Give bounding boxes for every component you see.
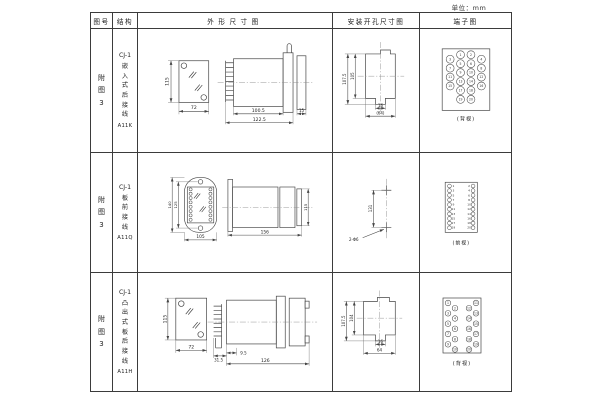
col-header-fig-no: 图号 [91,13,113,29]
mounting-cell-2: 131 2-Φ6 [333,153,420,273]
svg-text:16: 16 [479,84,483,88]
dim-body-depth: 126 [261,358,270,364]
terminal-drawing-a11q: 135791113151719 2468101214161820 (前视) [420,153,511,272]
svg-text:17: 17 [452,221,456,225]
structure-cell-2: CJ-1 板前接线 A11Q [113,153,138,273]
dim-front-inner-height: 125 [174,201,178,209]
svg-text:9: 9 [447,342,449,346]
mounting-drawing-a11q: 131 2-Φ6 [333,153,419,272]
fig-no-label: 附图3 [97,194,105,232]
svg-text:4: 4 [480,57,482,61]
svg-text:8: 8 [454,337,456,341]
code-label: A11K [118,123,133,129]
mounting-cell-3: 107.5 104 16 64 [333,273,420,391]
svg-text:4: 4 [454,317,456,321]
structure-label: 嵌入式后接线 [121,62,128,120]
svg-text:2: 2 [454,306,456,310]
svg-text:13: 13 [452,212,456,216]
terminal-column-right: 2468101214161820 [467,184,475,230]
terminal-grid-rear: 1234567891011121314151617181920 [445,300,479,352]
fig-no-cell-1: 附图3 [91,29,113,153]
fig-no-cell-2: 附图3 [91,153,113,273]
svg-text:20: 20 [467,348,471,352]
svg-text:19: 19 [459,98,463,102]
svg-text:12: 12 [467,306,471,310]
model-label: CJ-1 [119,289,131,296]
dim-panel: 15 [299,108,305,113]
front-terminal-dots [189,188,212,221]
svg-text:17: 17 [474,332,478,336]
dim-offset: 9.5 [240,350,247,355]
dim-cutout-width: 64 [377,348,383,353]
svg-text:1: 1 [447,301,449,305]
svg-text:14: 14 [467,317,471,321]
svg-text:7: 7 [447,332,449,336]
col-header-terminal: 端子图 [420,13,511,29]
svg-text:7: 7 [449,66,451,70]
svg-text:15: 15 [474,322,478,326]
svg-text:12: 12 [479,75,483,79]
mounting-cell-1: 107.5 105 16 (64) [333,29,420,153]
svg-text:10: 10 [469,71,473,75]
svg-text:6: 6 [468,193,470,197]
dim-slot-width: 16 [378,103,384,108]
terminal-grid-rear: 1234567891011121314151617181920 [446,51,485,104]
terminal-drawing-a11k: 1234567891011121314151617181920 (背视) [420,29,511,152]
svg-text:5: 5 [460,62,462,66]
view-label: (背视) [457,114,475,122]
svg-text:16: 16 [467,327,471,331]
col-header-structure: 结构 [113,13,138,29]
svg-text:16: 16 [467,216,471,220]
svg-text:13: 13 [459,80,463,84]
code-label: A11H [117,369,132,375]
terminal-drawing-a11h: 1234567891011121314151617181920 (背视) [420,273,511,391]
code-label: A11Q [117,235,132,241]
dim-front-height: 115 [165,77,171,86]
outline-drawing-a11q: 140 125 105 156 115 [138,153,332,272]
terminal-cell-2: 135791113151719 2468101214161820 (前视) [420,153,511,273]
outline-drawing-a11h: 115 72 9.5 31.5 126 [138,273,332,391]
svg-text:1: 1 [452,184,454,188]
svg-text:6: 6 [454,327,456,331]
svg-text:9: 9 [452,203,454,207]
col-header-outline: 外形尺寸图 [138,13,333,29]
manual-page: 单位：mm 图号 结构 外形尺寸图 安装开孔尺寸图 端子图 附图3 CJ-1 嵌… [0,0,600,400]
svg-text:14: 14 [467,212,471,216]
svg-text:2: 2 [468,184,470,188]
svg-text:11: 11 [452,207,456,211]
svg-text:15: 15 [448,84,452,88]
svg-text:5: 5 [447,322,449,326]
svg-text:10: 10 [467,203,471,207]
svg-text:3: 3 [447,311,449,315]
svg-text:11: 11 [448,75,452,79]
structure-cell-3: CJ-1 凸出式板后接线 A11H [113,273,138,391]
svg-text:1: 1 [460,53,462,57]
dim-cutout-outer-height: 107.5 [341,315,346,327]
col-header-mounting: 安装开孔尺寸图 [333,13,420,29]
svg-text:7: 7 [452,198,454,202]
dim-front-width: 72 [191,105,197,111]
svg-text:8: 8 [480,66,482,70]
outline-cell-1: 115 72 100.5 122.5 15 [138,29,333,153]
svg-text:19: 19 [452,226,456,230]
svg-text:20: 20 [467,226,471,230]
svg-text:12: 12 [467,207,471,211]
dim-cutout-inner-height: 104 [349,314,354,322]
outline-cell-3: 115 72 9.5 31.5 126 [138,273,333,391]
fig-no-label: 附图3 [97,313,105,351]
dim-body-depth: 100.5 [252,108,265,114]
terminal-cell-3: 1234567891011121314151617181920 (背视) [420,273,511,391]
svg-text:14: 14 [469,80,473,84]
view-label: (背视) [453,359,471,367]
dim-front-width: 105 [196,234,205,240]
dim-slot-width: 16 [378,339,384,344]
dim-cutout-outer-height: 107.5 [342,73,347,85]
dim-stud-depth: 31.5 [214,357,223,362]
svg-text:6: 6 [470,62,472,66]
outline-drawing-a11k: 115 72 100.5 122.5 15 [138,29,332,152]
unit-label: 单位：mm [428,2,510,12]
dim-depth: 156 [261,229,270,235]
dim-front-height: 115 [162,315,168,324]
fig-no-cell-3: 附图3 [91,273,113,391]
fig-no-label: 附图3 [97,72,105,110]
dim-hole-spacing: 131 [368,204,373,212]
dim-total-depth: 122.5 [253,117,266,123]
svg-text:4: 4 [468,189,470,193]
dim-cutout-width: (64) [376,111,385,116]
svg-text:3: 3 [449,57,451,61]
mounting-drawing-a11k: 107.5 105 16 (64) [333,29,419,152]
structure-label: 板前接线 [121,194,128,232]
outline-cell-2: 140 125 105 156 115 [138,153,333,273]
terminal-cell-1: 1234567891011121314151617181920 (背视) [420,29,511,153]
mounting-drawing-a11h: 107.5 104 16 64 [333,273,419,391]
svg-text:18: 18 [469,89,473,93]
svg-text:13: 13 [474,311,478,315]
svg-text:18: 18 [467,337,471,341]
dim-front-width: 72 [188,345,194,351]
svg-text:15: 15 [452,216,456,220]
svg-text:5: 5 [452,193,454,197]
svg-text:9: 9 [460,71,462,75]
model-label: CJ-1 [119,184,131,191]
svg-text:20: 20 [469,98,473,102]
svg-text:17: 17 [459,89,463,93]
svg-text:11: 11 [474,301,478,305]
structure-label: 凸出式板后接线 [121,299,128,366]
svg-text:10: 10 [453,348,457,352]
svg-text:2: 2 [470,53,472,57]
dim-hole-callout: 2-Φ6 [349,237,359,242]
model-label: CJ-1 [119,52,131,59]
terminal-column-left: 135791113151719 [448,184,456,230]
view-label: (前视) [453,240,470,247]
svg-text:19: 19 [474,342,478,346]
dim-side-height: 115 [304,203,308,211]
spec-table: 图号 结构 外形尺寸图 安装开孔尺寸图 端子图 附图3 CJ-1 嵌入式后接线 … [90,12,512,392]
structure-cell-1: CJ-1 嵌入式后接线 A11K [113,29,138,153]
dim-cutout-inner-height: 105 [350,72,355,80]
dim-front-outer-height: 140 [168,201,172,209]
svg-text:8: 8 [468,198,470,202]
svg-text:3: 3 [452,189,454,193]
svg-text:18: 18 [467,221,471,225]
